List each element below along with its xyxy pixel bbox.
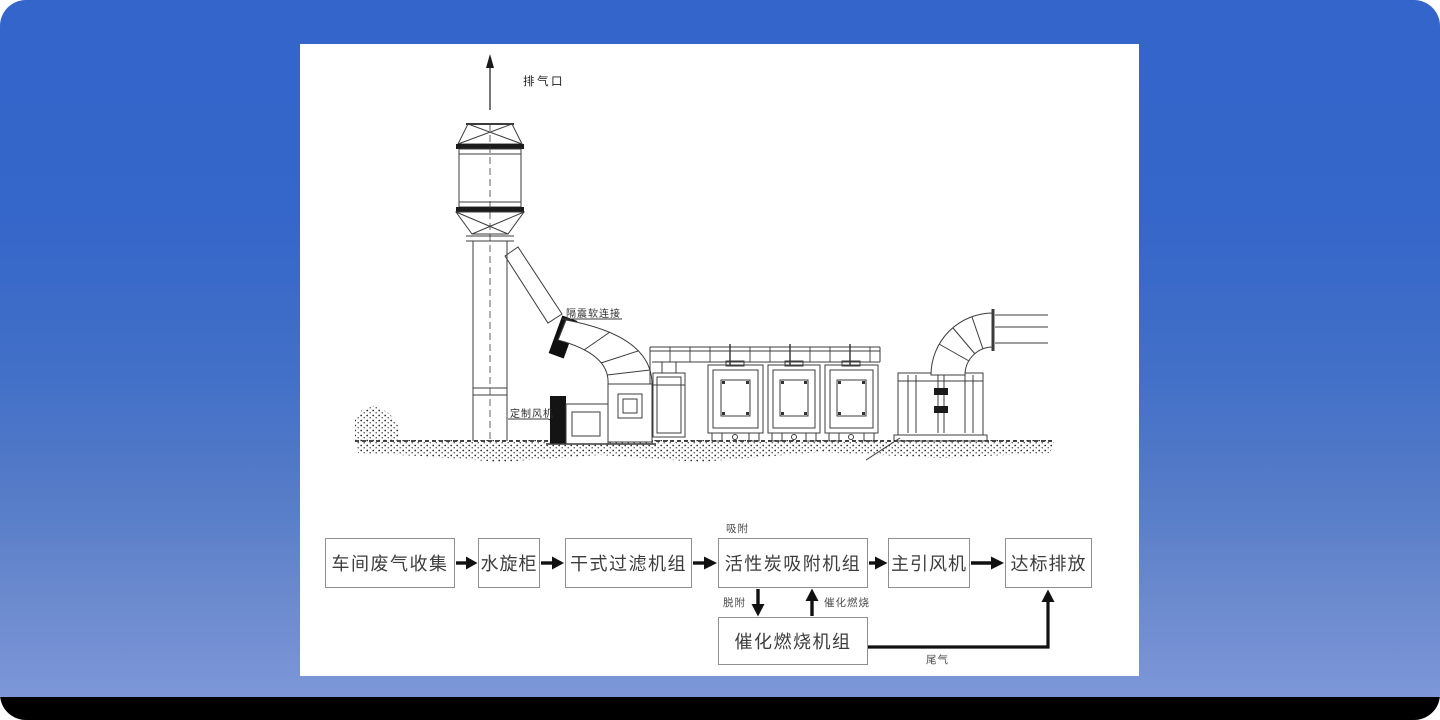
label-exhaust-outlet: 排气口 [523, 73, 565, 89]
bottom-black-bar [0, 697, 1440, 720]
arrow-head-icon [752, 604, 765, 617]
flow-box-dry-filter-unit: 干式过滤机组 [565, 538, 692, 588]
label-adsorption: 吸附 [726, 521, 749, 536]
arrow-head-icon [704, 557, 717, 570]
flow-box-compliant-discharge: 达标排放 [1005, 538, 1092, 588]
screen-background: 排气口 隔震软连接 定制风机 车间废气收集 水旋柜 干式过滤机组 活性炭吸附机组… [0, 0, 1440, 720]
outlet-unit [866, 309, 1048, 460]
flow-box-water-spray-cabinet: 水旋柜 [478, 538, 540, 588]
label-catalytic-combustion: 催化燃烧 [824, 595, 870, 610]
flow-box-main-draft-fan: 主引风机 [888, 538, 970, 588]
label-flex-connection: 隔震软连接 [566, 305, 621, 320]
label-desorption: 脱附 [723, 595, 746, 610]
label-tail-gas: 尾气 [926, 652, 949, 667]
flow-box-workshop-exhaust-collection: 车间废气收集 [325, 538, 455, 588]
fan-motor [550, 396, 566, 444]
arrow-head-icon [806, 589, 819, 602]
diagram-panel: 排气口 隔震软连接 定制风机 车间废气收集 水旋柜 干式过滤机组 活性炭吸附机组… [300, 44, 1139, 676]
adsorption-box-1 [708, 361, 763, 441]
adsorption-box-3 [825, 361, 878, 441]
arrow-head-icon [552, 557, 564, 570]
flow-box-activated-carbon-adsorption-unit: 活性炭吸附机组 [718, 538, 868, 588]
arrow-head-icon [1042, 590, 1055, 603]
exhaust-stack [456, 54, 524, 441]
stack-arrow-icon [486, 54, 494, 68]
label-custom-fan: 定制风机 [510, 405, 554, 420]
flow-box-catalytic-combustion-unit: 催化燃烧机组 [718, 617, 868, 665]
adsorption-box-2 [768, 361, 820, 441]
arrow-head-icon [991, 557, 1004, 570]
arrow-head-icon [466, 557, 478, 570]
filter-tank [653, 362, 685, 437]
arrow-head-icon [875, 557, 888, 570]
